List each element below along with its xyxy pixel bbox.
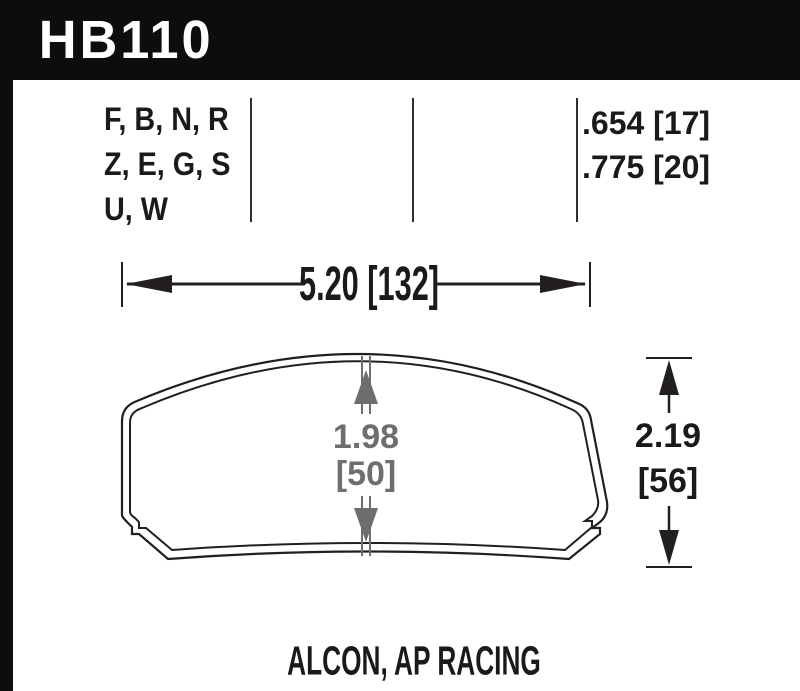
application-caption: ALCON, AP RACING: [287, 641, 541, 682]
height-dimension-value: 2.19: [635, 419, 701, 453]
brake-pad-spec-sheet: HB110 F, B, N, R Z, E, G, S U, W .654 [1…: [0, 0, 800, 691]
width-dimension-label: 5.20 [132]: [299, 261, 439, 309]
arrow-left-icon: [126, 275, 172, 293]
arrow-down-icon: [659, 530, 679, 565]
arrow-down-icon: [354, 508, 378, 542]
height-dimension-value-mm: [56]: [638, 464, 698, 498]
center-thickness-value-mm: [50]: [336, 457, 396, 491]
center-thickness-value: 1.98: [333, 420, 399, 454]
arrow-up-icon: [659, 360, 679, 395]
brake-pad-drawing: [0, 0, 800, 691]
arrow-right-icon: [540, 275, 586, 293]
arrow-up-icon: [354, 370, 378, 404]
